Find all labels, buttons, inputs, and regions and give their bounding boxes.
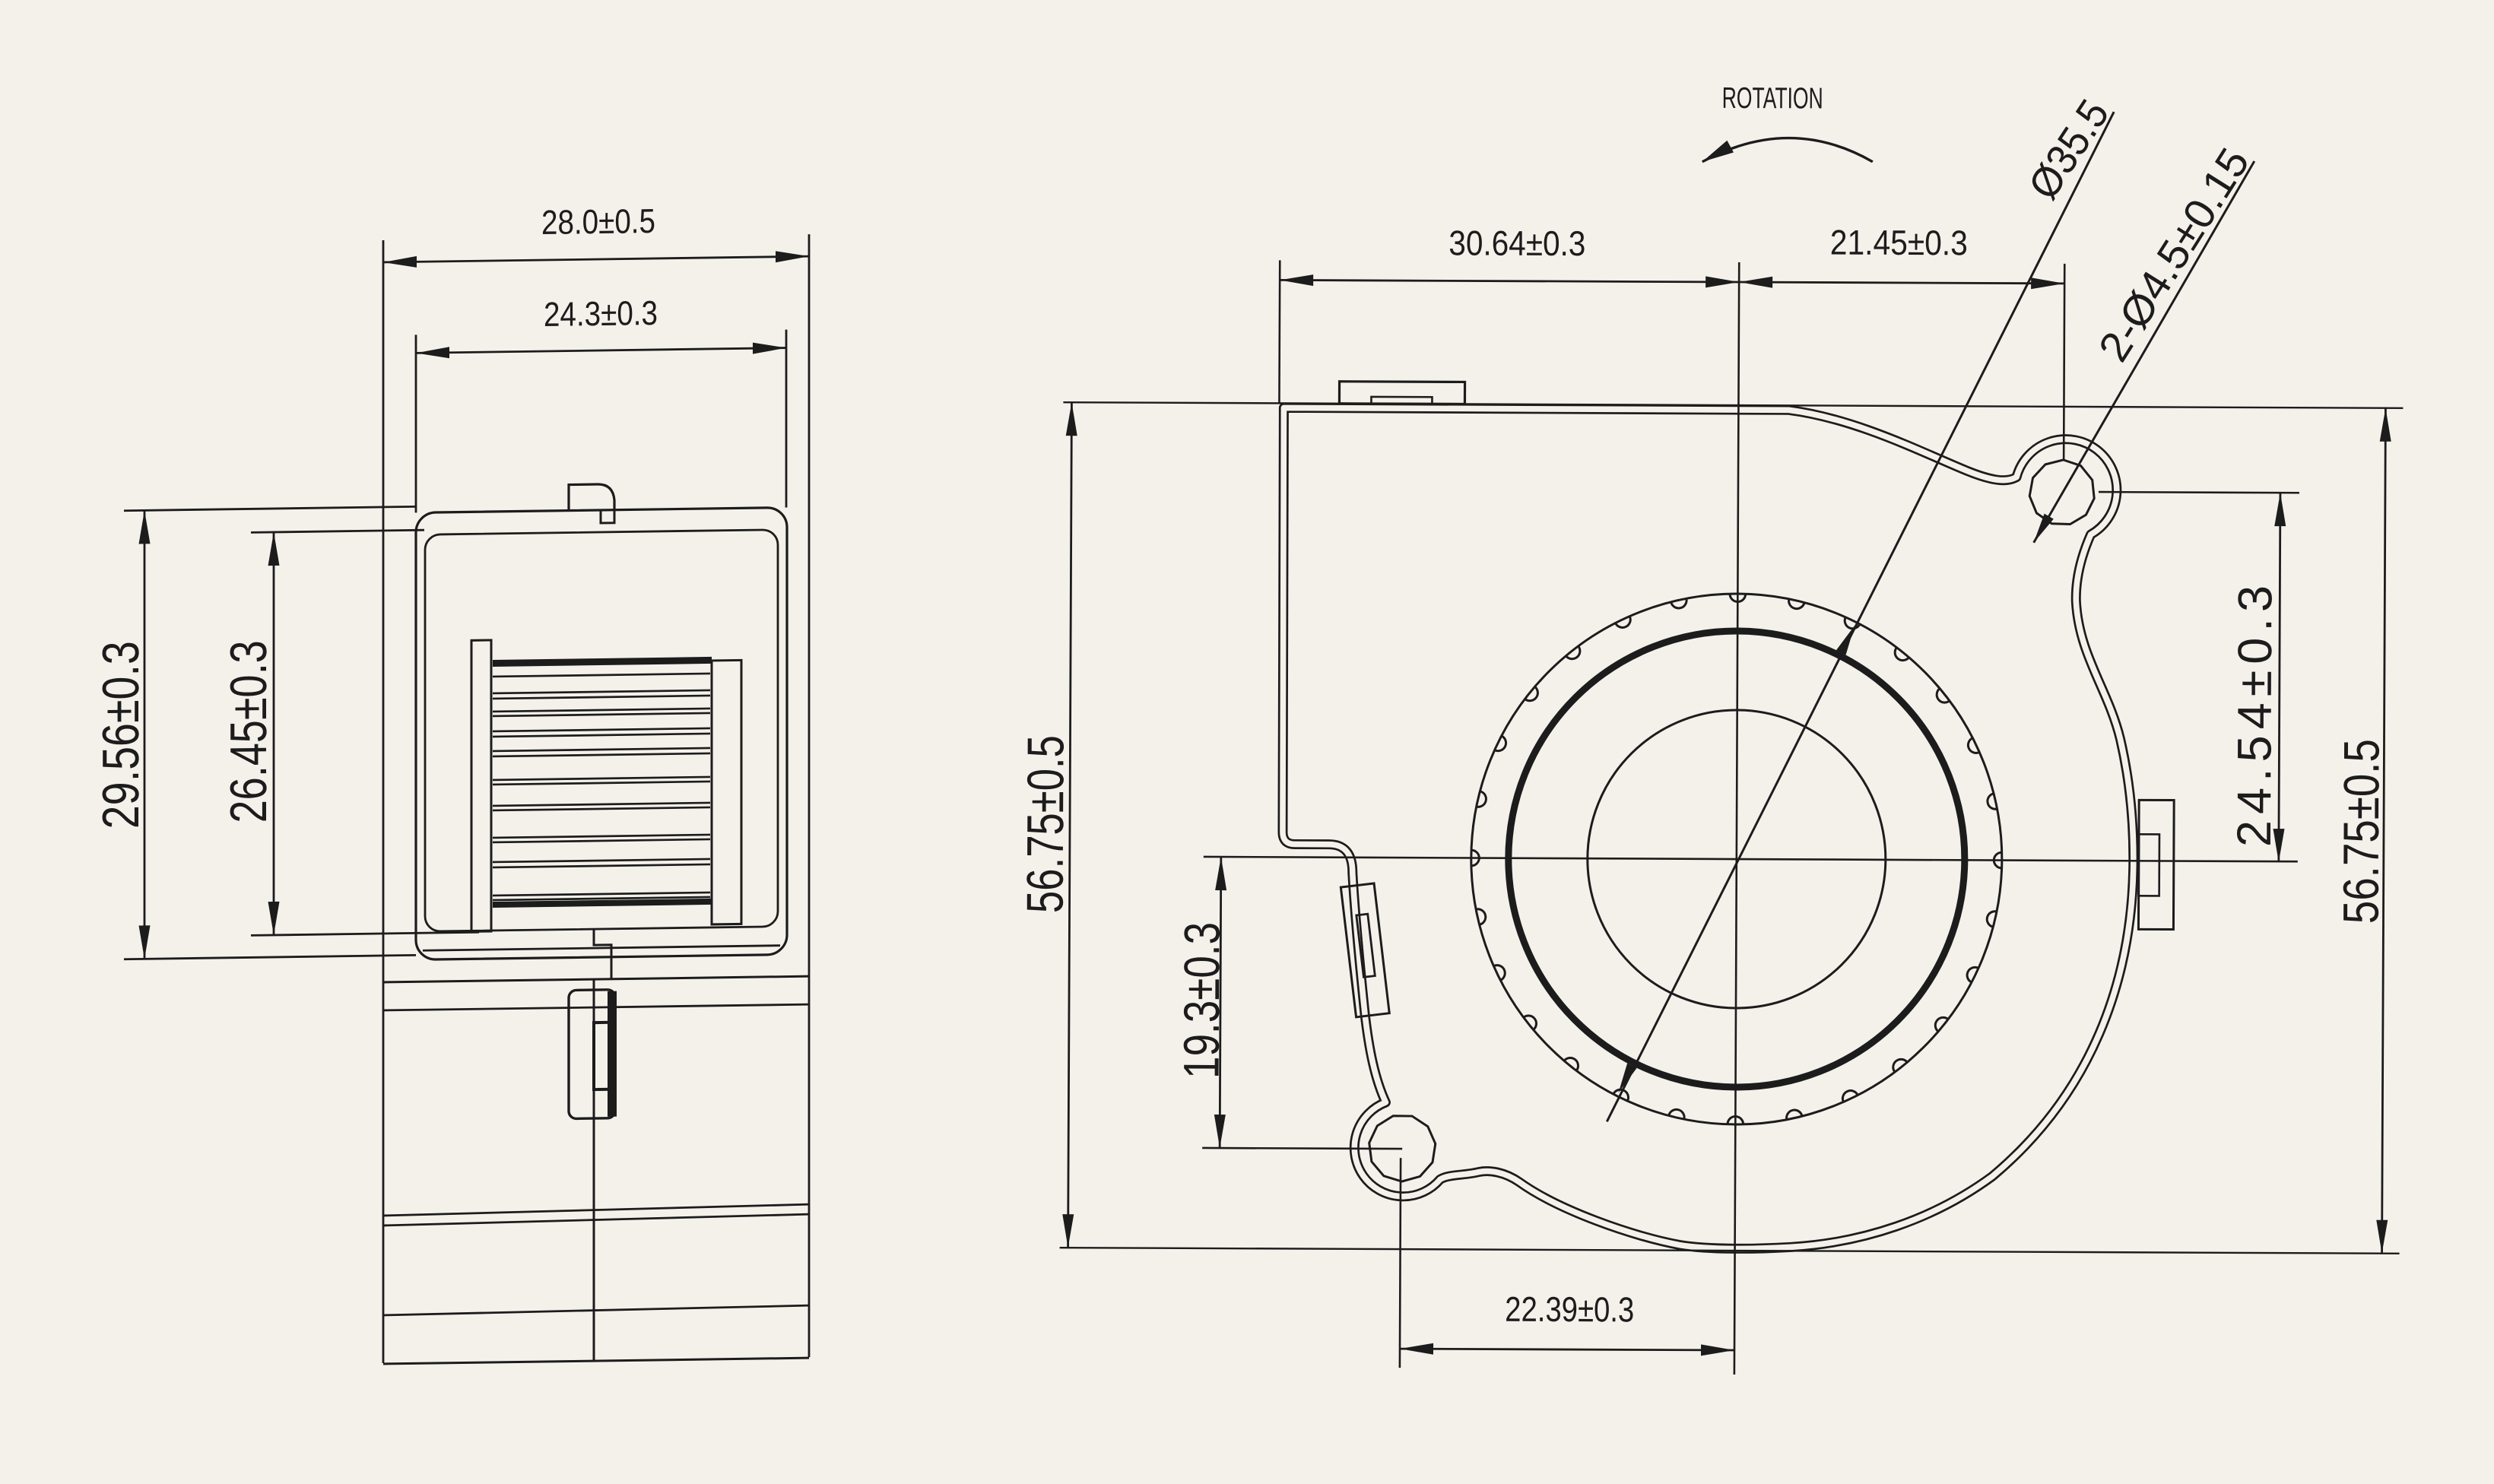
- svg-text:28.0±0.5: 28.0±0.5: [541, 201, 655, 242]
- svg-text:21.45±0.3: 21.45±0.3: [1830, 223, 1968, 263]
- svg-text:56.75±0.5: 56.75±0.5: [1017, 735, 1075, 913]
- svg-text:24.3±0.3: 24.3±0.3: [544, 293, 658, 334]
- svg-text:22.39±0.3: 22.39±0.3: [1505, 1289, 1634, 1330]
- svg-text:26.45±0.3: 26.45±0.3: [220, 640, 278, 823]
- svg-text:19.3±0.3: 19.3±0.3: [1173, 922, 1230, 1079]
- svg-text:ROTATION: ROTATION: [1722, 82, 1823, 116]
- svg-text:29.56±0.3: 29.56±0.3: [92, 641, 150, 829]
- svg-text:56.75±0.5: 56.75±0.5: [2332, 739, 2389, 924]
- svg-text:24.54±0.3: 24.54±0.3: [2228, 585, 2283, 847]
- svg-text:30.64±0.3: 30.64±0.3: [1448, 223, 1585, 263]
